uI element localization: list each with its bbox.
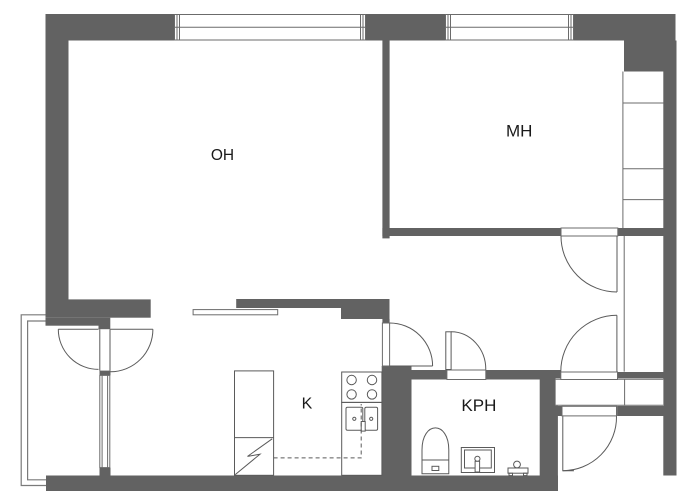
svg-text:MH: MH [506,122,532,141]
svg-text:KPH: KPH [461,396,496,415]
svg-text:OH: OH [211,147,234,164]
svg-text:K: K [302,396,313,413]
